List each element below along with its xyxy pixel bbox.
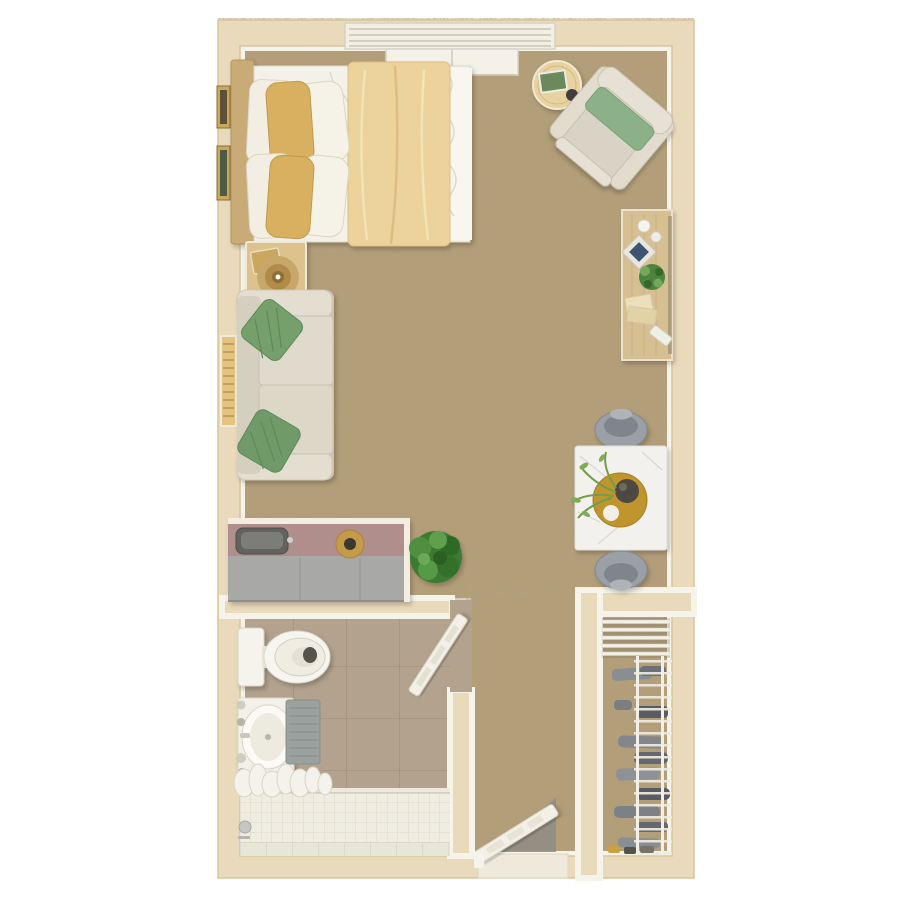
pillow-gold xyxy=(265,155,315,240)
shoes xyxy=(608,846,654,854)
left-window xyxy=(221,336,236,426)
napkin xyxy=(603,505,619,521)
sofa xyxy=(235,290,334,480)
hallway-carpet xyxy=(472,598,578,856)
papers xyxy=(627,306,657,325)
floor-plan xyxy=(0,0,900,900)
book xyxy=(539,70,567,92)
shower-valve xyxy=(238,821,251,839)
entry-threshold xyxy=(478,854,568,878)
floor-plan-screenshot xyxy=(0,0,900,900)
cup xyxy=(638,220,650,232)
pillow-gold xyxy=(265,81,315,166)
bed-pillows xyxy=(246,79,351,240)
desk-chair-edge xyxy=(668,216,672,354)
cabinet-front xyxy=(228,556,408,602)
door-hinge-cap xyxy=(474,852,484,868)
cup xyxy=(651,232,661,242)
bed xyxy=(231,60,472,246)
desk-plant xyxy=(639,264,665,290)
closet-left-wall xyxy=(578,590,600,878)
drain xyxy=(265,734,271,740)
bathroom-doorway xyxy=(450,600,472,692)
toilet-tank xyxy=(238,628,264,686)
bath-mat xyxy=(286,700,320,764)
faucet xyxy=(287,537,293,543)
kitchenette xyxy=(228,518,410,602)
faucet xyxy=(240,733,250,738)
bathroom-right-wall xyxy=(450,690,472,856)
vase xyxy=(615,479,639,503)
toilet xyxy=(238,628,330,686)
desk xyxy=(622,210,673,360)
